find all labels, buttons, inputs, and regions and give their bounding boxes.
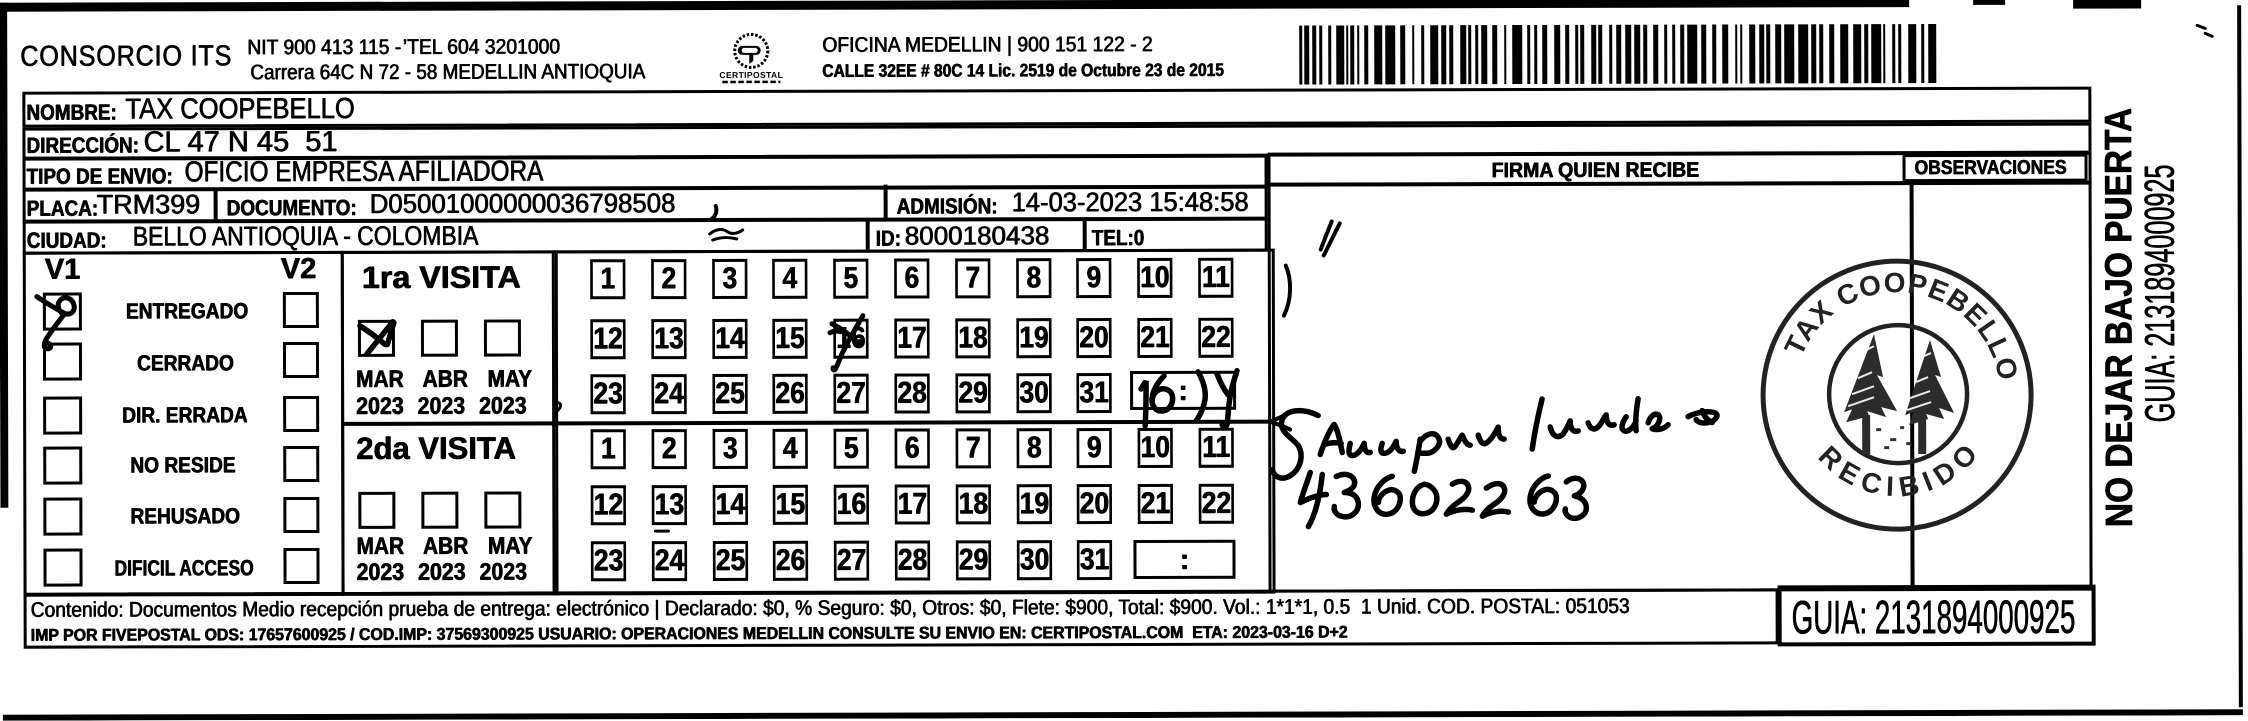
svg-text:CERTIPOSTAL: CERTIPOSTAL	[719, 70, 783, 80]
svg-text:RECIBIDO: RECIBIDO	[1813, 433, 1988, 503]
